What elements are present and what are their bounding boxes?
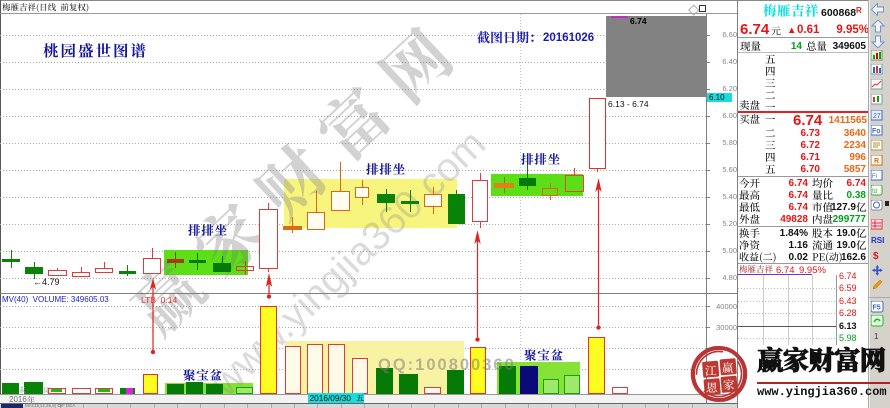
svg-text:RSI: RSI [871,236,884,245]
svg-text:fd: fd [872,189,877,195]
svg-text:1: 1 [874,332,879,341]
svg-text:Fi: Fi [872,174,877,180]
svg-text:27: 27 [873,113,881,120]
svg-text:R: R [874,158,879,165]
svg-text:Fo: Fo [872,128,881,135]
svg-text:$: $ [873,251,879,262]
svg-text:F5: F5 [873,305,881,312]
